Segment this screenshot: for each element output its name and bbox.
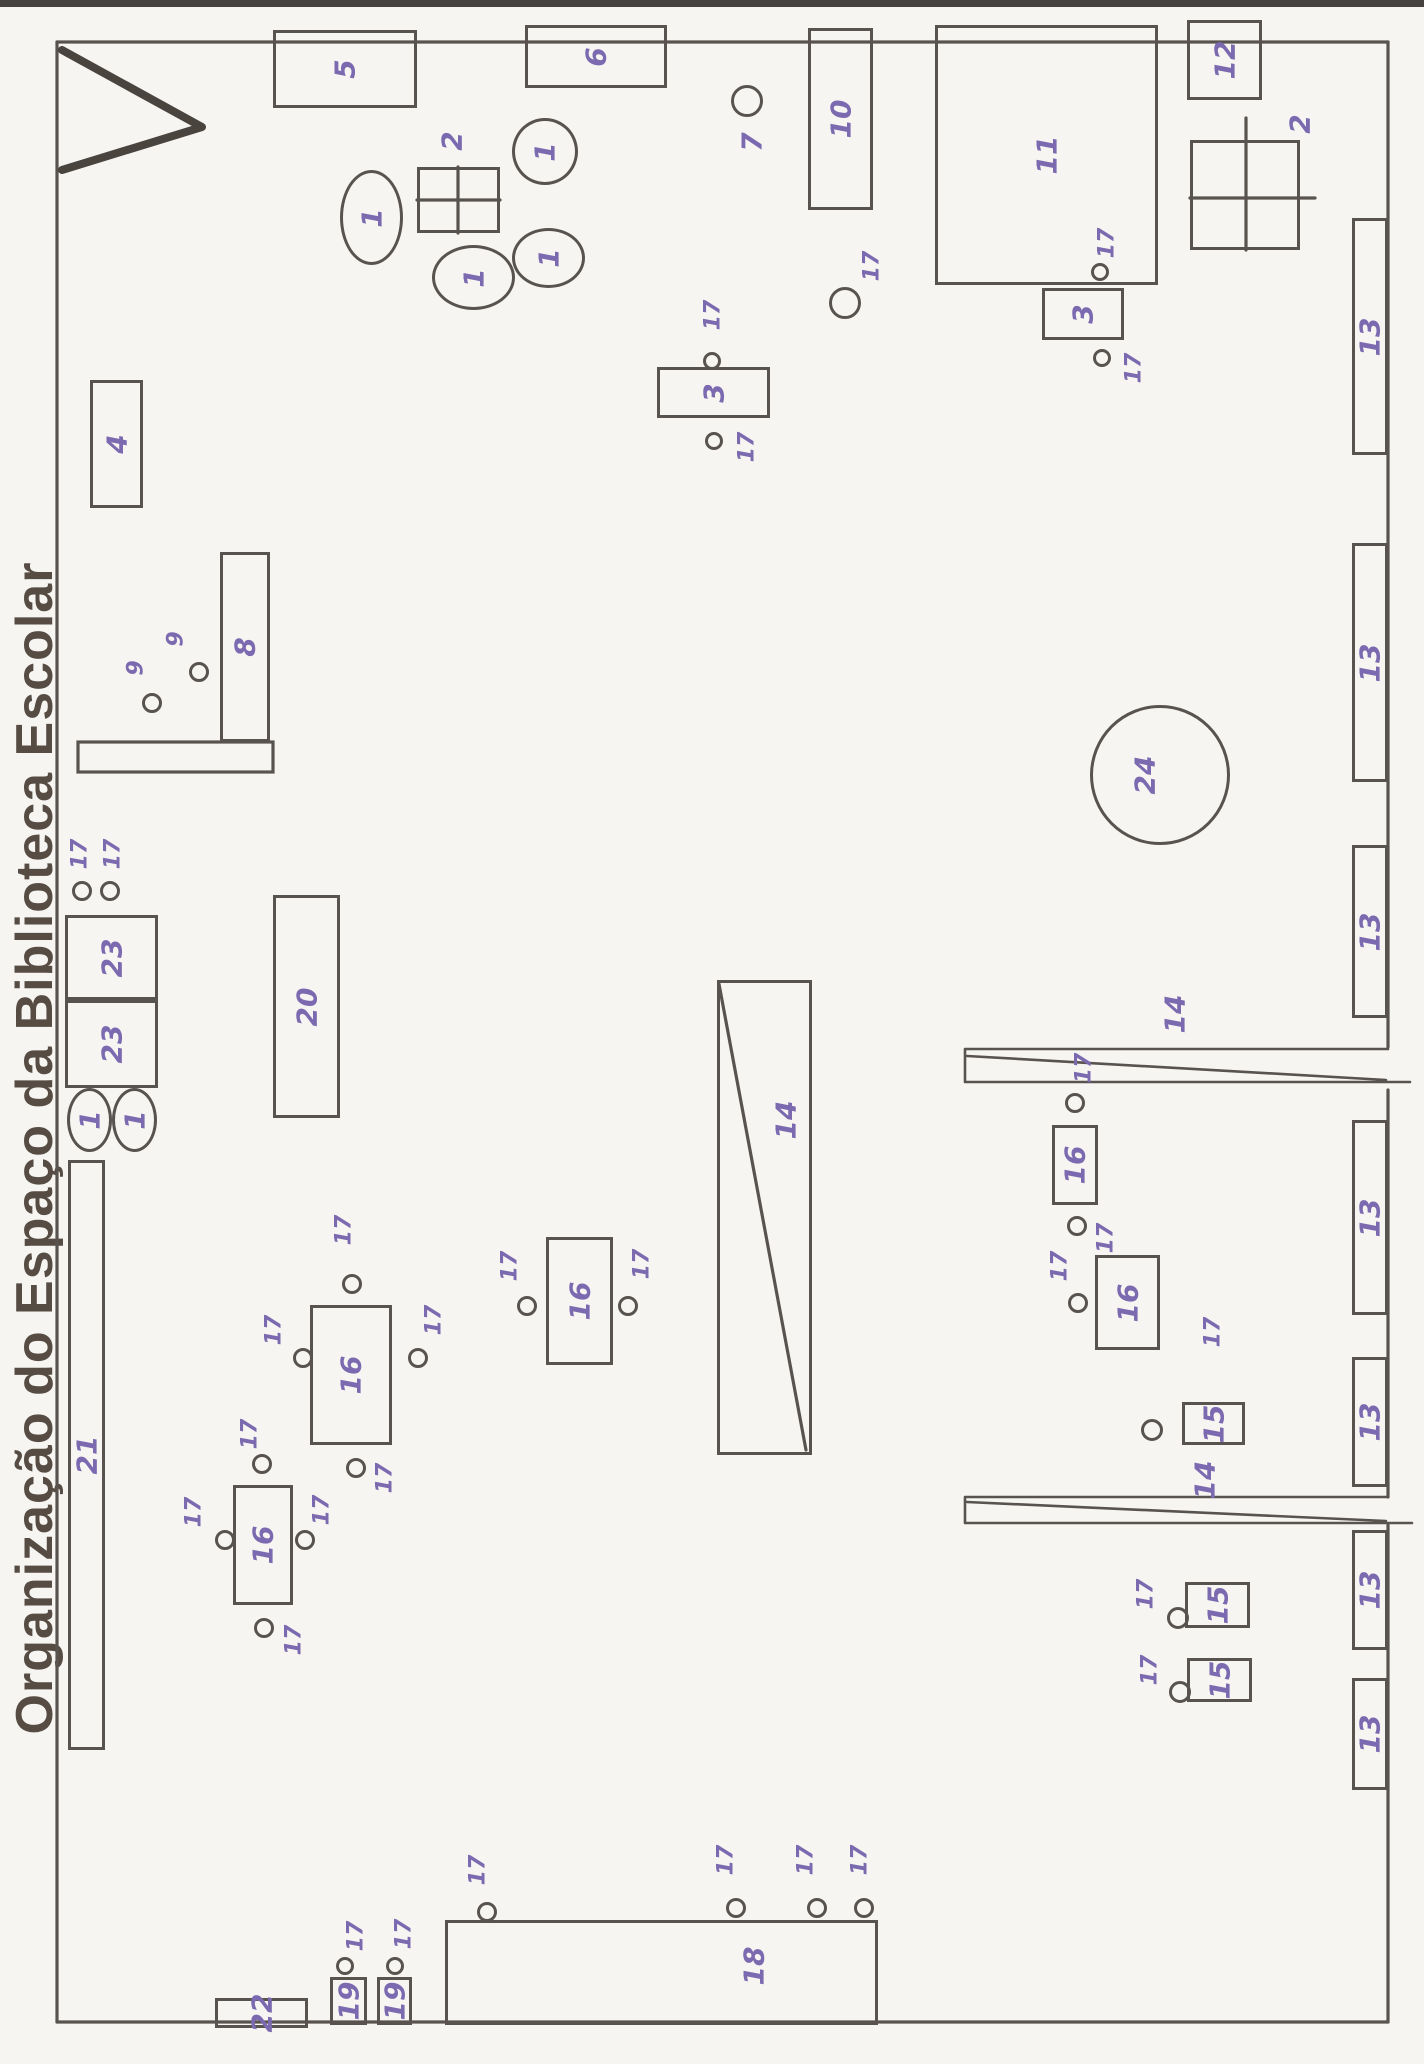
spot-7-label: 7 <box>736 132 769 151</box>
table-19-label: 19 <box>378 1982 411 2021</box>
chair-17 <box>252 1454 272 1474</box>
chair-17 <box>1068 1293 1088 1313</box>
shelf-12-label: 12 <box>1208 41 1241 80</box>
seat-9 <box>189 662 209 682</box>
chair-17-label: 17 <box>1138 1655 1163 1686</box>
wall-shelf-13-label: 13 <box>1354 1198 1387 1237</box>
shelf-6-label: 6 <box>580 47 613 66</box>
shelf-21-label: 21 <box>70 1436 103 1475</box>
display-stand-14 <box>717 980 812 1455</box>
table-3-label: 3 <box>1067 304 1100 323</box>
chair-17-label: 17 <box>1122 353 1147 384</box>
wall-shelf-13-label: 13 <box>1354 317 1387 356</box>
shelf-20-label: 20 <box>290 987 323 1026</box>
furniture-layer: 5621111710111223171731717171313131313131… <box>0 0 1424 2064</box>
chair-17-label: 17 <box>282 1625 307 1656</box>
chair-17-label: 17 <box>794 1845 819 1876</box>
chair-17-label: 17 <box>68 839 93 870</box>
table-2 <box>417 167 500 233</box>
chair-17-label: 17 <box>1134 1579 1159 1610</box>
shelf-8-label: 8 <box>229 637 262 656</box>
chair-17-label: 17 <box>714 1845 739 1876</box>
pouf-1-label: 1 <box>118 1110 151 1129</box>
chair-17-label: 17 <box>1095 228 1120 259</box>
table-19-label: 19 <box>332 1982 365 2021</box>
chair-17 <box>100 881 120 901</box>
chair-17-label: 17 <box>182 1497 207 1528</box>
chair-17-label: 17 <box>1072 1053 1097 1084</box>
chair-17 <box>618 1296 638 1316</box>
shelf-5-label: 5 <box>329 59 362 78</box>
pouf-1-label: 1 <box>529 142 562 161</box>
chair-17-label: 17 <box>1201 1317 1226 1348</box>
chair-17-label: 17 <box>860 251 885 282</box>
chair-17 <box>215 1530 235 1550</box>
chair-17 <box>705 432 723 450</box>
chair-17-label: 17 <box>344 1921 369 1952</box>
chair-17-label: 17 <box>310 1495 335 1526</box>
chair-17 <box>1169 1681 1191 1703</box>
spot-7 <box>731 85 763 117</box>
table-15-label: 15 <box>1201 1586 1234 1625</box>
area-11-label: 11 <box>1030 136 1063 175</box>
chair-17 <box>293 1348 313 1368</box>
wall-shelf-13-label: 13 <box>1354 1715 1387 1754</box>
table-2-label: 2 <box>1284 114 1317 133</box>
table-16-label: 16 <box>1111 1283 1144 1322</box>
chair-17 <box>1093 349 1111 367</box>
seat-9-label: 9 <box>124 660 149 675</box>
table-16-label: 16 <box>563 1282 596 1321</box>
chair-17 <box>1167 1607 1189 1629</box>
chair-17 <box>72 881 92 901</box>
chair-17 <box>336 1957 354 1975</box>
display-stand-14-label: 14 <box>770 1101 803 1140</box>
seat-9-label: 9 <box>164 631 189 646</box>
round-table-24-label: 24 <box>1129 756 1162 795</box>
chair-17 <box>829 287 861 319</box>
table-2-label: 2 <box>436 131 469 150</box>
counter-18-label: 18 <box>738 1947 771 1986</box>
table-16-label: 16 <box>335 1356 368 1395</box>
chair-17 <box>1091 263 1109 281</box>
chair-17-label: 17 <box>422 1305 447 1336</box>
wall-shelf-13-label: 13 <box>1354 1403 1387 1442</box>
chair-17-label: 17 <box>498 1251 523 1282</box>
seat-9 <box>142 693 162 713</box>
door-14-label: 14 <box>1159 995 1192 1034</box>
chair <box>1141 1419 1163 1441</box>
chair-17 <box>726 1898 746 1918</box>
chair-17 <box>1067 1216 1087 1236</box>
wall-shelf-13-label: 13 <box>1354 912 1387 951</box>
chair-17-label: 17 <box>1048 1251 1073 1282</box>
chair-17 <box>854 1898 874 1918</box>
chair-17 <box>703 352 721 370</box>
chair-17-label: 17 <box>238 1419 263 1450</box>
cabinet-23-label: 23 <box>95 938 128 977</box>
table-15-label: 15 <box>1197 1404 1230 1443</box>
chair-17-label: 17 <box>466 1855 491 1886</box>
chair-17 <box>517 1296 537 1316</box>
table-2 <box>1190 140 1300 250</box>
chair-17-label: 17 <box>373 1463 398 1494</box>
shelf-4-label: 4 <box>100 434 133 453</box>
table-3-label: 3 <box>697 383 730 402</box>
chair-17-label: 17 <box>630 1249 655 1280</box>
scanned-floor-plan: Organização do Espaço da Biblioteca Esco… <box>0 0 1424 2064</box>
counter-18 <box>445 1920 878 2025</box>
wall-shelf-13-label: 13 <box>1354 1571 1387 1610</box>
pouf-1-label: 1 <box>73 1110 106 1129</box>
chair-17 <box>477 1902 497 1922</box>
cabinet-23-label: 23 <box>95 1025 128 1064</box>
door-14-label: 14 <box>1189 1461 1222 1500</box>
table-15-label: 15 <box>1203 1661 1236 1700</box>
table-16-label: 16 <box>1059 1146 1092 1185</box>
chair-17 <box>295 1530 315 1550</box>
pouf-1-label: 1 <box>532 248 565 267</box>
chair-17-label: 17 <box>392 1919 417 1950</box>
chair-17-label: 17 <box>848 1845 873 1876</box>
wall-shelf-13-label: 13 <box>1354 643 1387 682</box>
chair-17 <box>254 1618 274 1638</box>
chair-17-label: 17 <box>735 432 760 463</box>
chair-17 <box>386 1957 404 1975</box>
chair-17-label: 17 <box>701 300 726 331</box>
pouf-1-label: 1 <box>355 208 388 227</box>
shelf-10-label: 10 <box>824 100 857 139</box>
chair-17-label: 17 <box>1094 1223 1119 1254</box>
chair-17 <box>408 1348 428 1368</box>
chair-17 <box>346 1458 366 1478</box>
chair-17 <box>807 1898 827 1918</box>
pouf-1-label: 1 <box>457 268 490 287</box>
shelf-22-label: 22 <box>245 1994 278 2033</box>
chair-17-label: 17 <box>332 1215 357 1246</box>
chair-17-label: 17 <box>101 839 126 870</box>
chair-17 <box>342 1274 362 1294</box>
chair-17-label: 17 <box>262 1315 287 1346</box>
chair-17 <box>1065 1093 1085 1113</box>
table-16-label: 16 <box>247 1526 280 1565</box>
